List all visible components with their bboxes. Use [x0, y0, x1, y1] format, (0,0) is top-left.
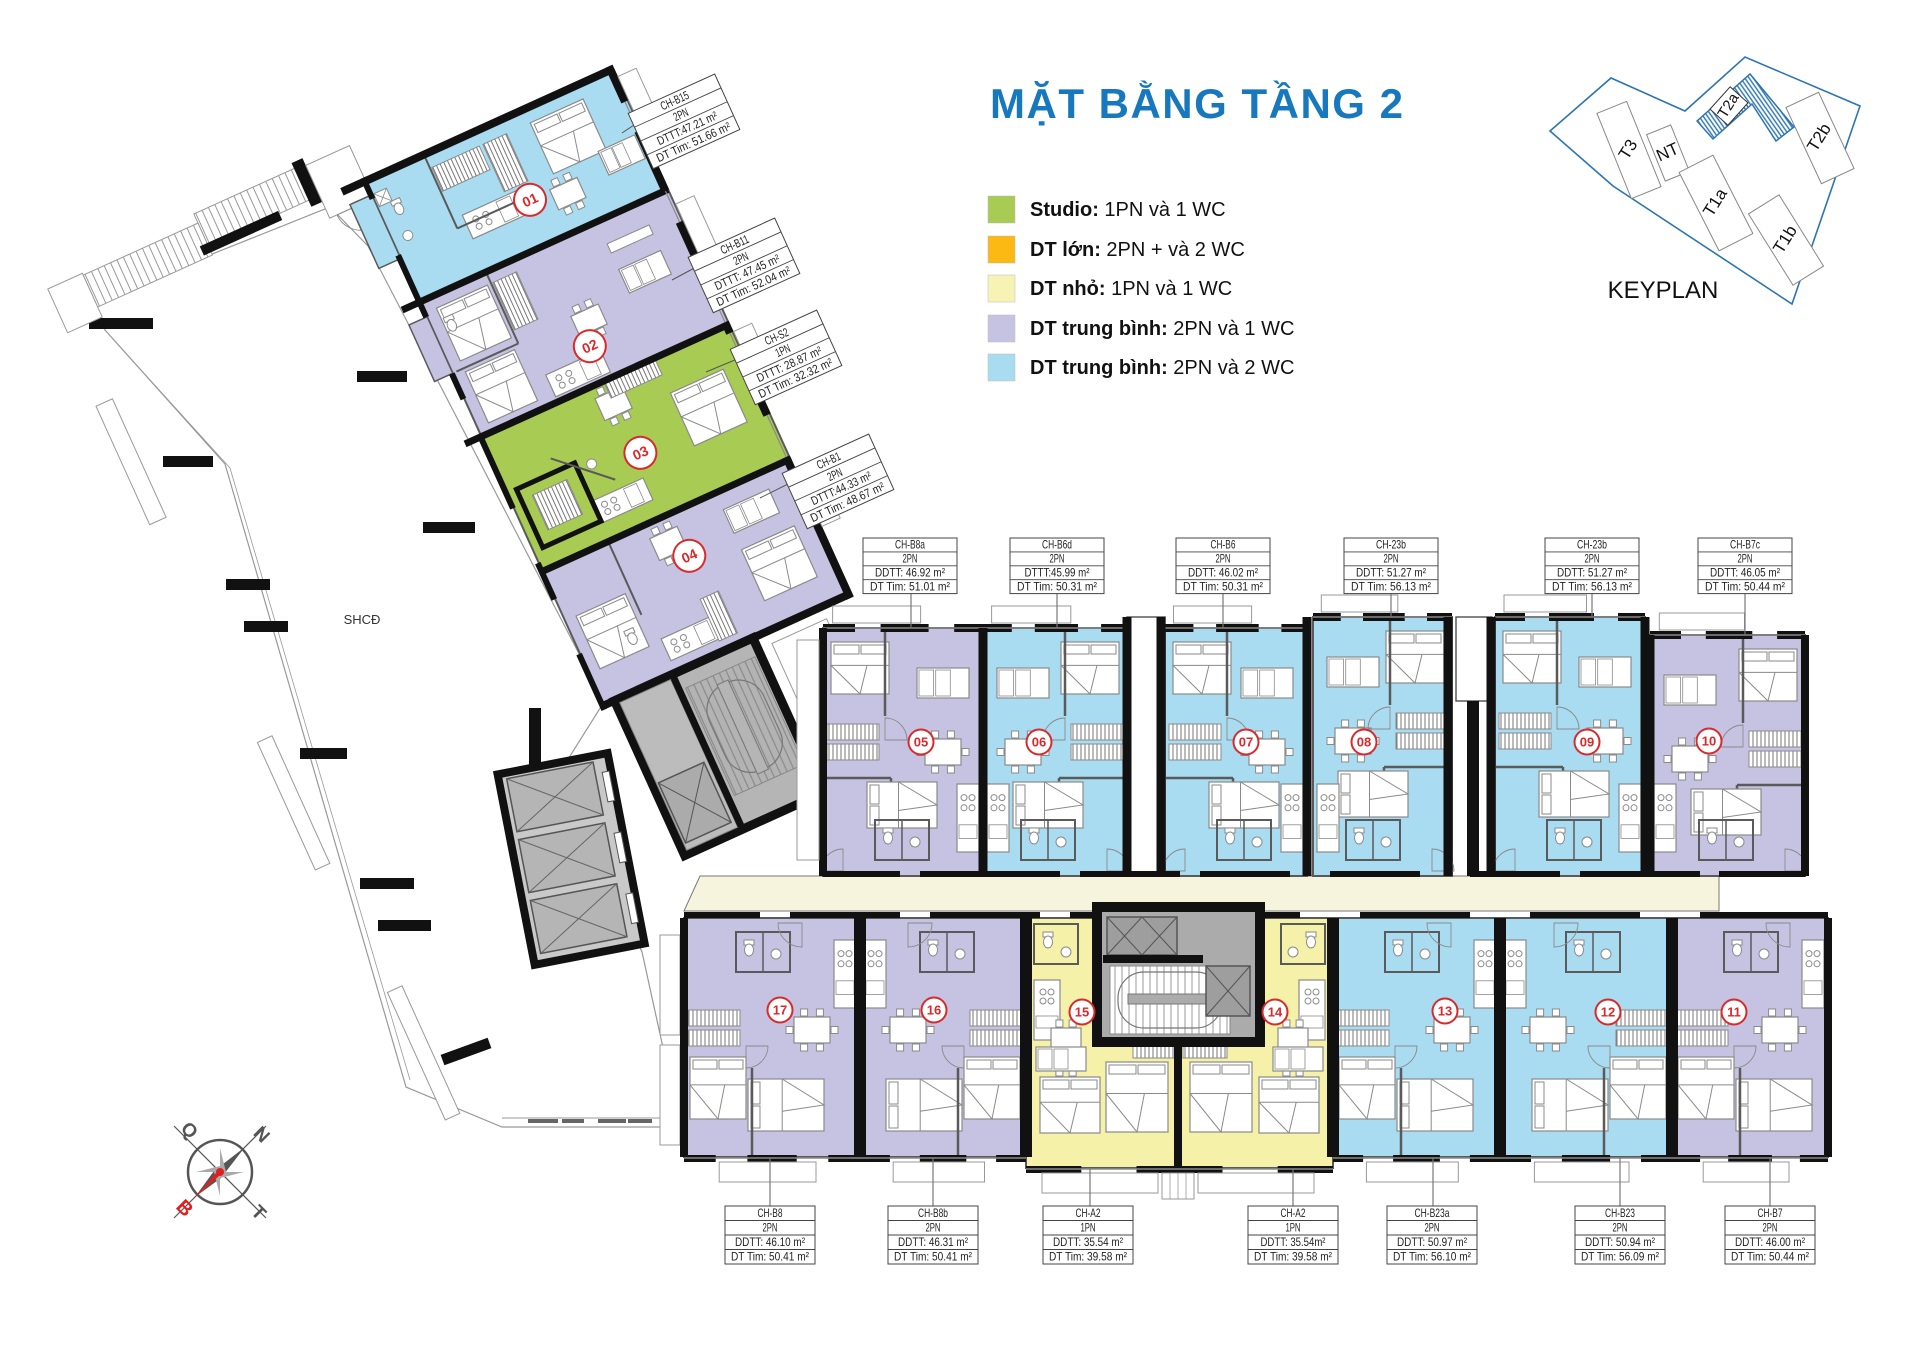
svg-text:KEYPLAN: KEYPLAN [1608, 277, 1719, 304]
svg-text:DT Tim: 56.10 m²: DT Tim: 56.10 m² [1393, 1250, 1471, 1264]
svg-text:CH-A2: CH-A2 [1076, 1206, 1101, 1220]
svg-text:17: 17 [773, 1003, 787, 1018]
svg-text:2PN: 2PN [1763, 1221, 1778, 1235]
svg-text:DT Tim: 51.01 m²: DT Tim: 51.01 m² [870, 579, 950, 593]
svg-text:15: 15 [1075, 1005, 1089, 1020]
svg-text:2PN: 2PN [926, 1221, 941, 1235]
svg-text:2PN: 2PN [1425, 1221, 1440, 1235]
svg-text:2PN: 2PN [1738, 552, 1753, 566]
svg-text:CH-B8a: CH-B8a [895, 538, 925, 552]
svg-text:CH-B7: CH-B7 [1758, 1206, 1783, 1220]
svg-text:2PN: 2PN [1613, 1221, 1628, 1235]
svg-text:14: 14 [1268, 1005, 1283, 1020]
svg-text:CH-A2: CH-A2 [1281, 1206, 1306, 1220]
svg-text:CH-23b: CH-23b [1577, 538, 1607, 552]
svg-text:Studio: 1PN và 1 WC: Studio: 1PN và 1 WC [1030, 199, 1226, 221]
svg-text:DDTT: 51.27 m²: DDTT: 51.27 m² [1557, 565, 1627, 579]
svg-text:DT Tim: 39.58 m²: DT Tim: 39.58 m² [1049, 1250, 1127, 1264]
svg-text:CH-B23a: CH-B23a [1415, 1206, 1450, 1220]
svg-text:DT Tim: 39.58 m²: DT Tim: 39.58 m² [1254, 1250, 1332, 1264]
svg-text:DT trung bình: 2PN và 1 WC: DT trung bình: 2PN và 1 WC [1030, 318, 1294, 340]
svg-text:2PN: 2PN [763, 1221, 778, 1235]
svg-text:10: 10 [1702, 734, 1716, 749]
svg-text:1PN: 1PN [1286, 1221, 1301, 1235]
svg-text:2PN: 2PN [1216, 552, 1231, 566]
svg-text:11: 11 [1727, 1005, 1741, 1020]
svg-text:DDTT: 50.97 m²: DDTT: 50.97 m² [1397, 1235, 1467, 1249]
svg-text:DT Tim: 56.09 m²: DT Tim: 56.09 m² [1581, 1250, 1659, 1264]
svg-text:2PN: 2PN [1585, 552, 1600, 566]
svg-text:DT Tim: 50.31 m²: DT Tim: 50.31 m² [1183, 579, 1263, 593]
svg-text:CH-B23: CH-B23 [1605, 1206, 1635, 1220]
svg-text:DT trung bình: 2PN và 2 WC: DT trung bình: 2PN và 2 WC [1030, 357, 1294, 379]
svg-text:CH-B7c: CH-B7c [1730, 538, 1760, 552]
svg-text:DDTT: 46.00 m²: DDTT: 46.00 m² [1735, 1235, 1805, 1249]
svg-text:DTTT:45.99 m²: DTTT:45.99 m² [1025, 565, 1090, 579]
svg-text:CH-B8: CH-B8 [758, 1206, 783, 1220]
svg-text:CH-B6: CH-B6 [1211, 538, 1236, 552]
svg-text:09: 09 [1580, 735, 1594, 750]
svg-text:DT nhỏ: 1PN và 1 WC: DT nhỏ: 1PN và 1 WC [1030, 278, 1232, 300]
svg-text:DDTT: 51.27 m²: DDTT: 51.27 m² [1356, 565, 1426, 579]
svg-text:13: 13 [1438, 1004, 1452, 1019]
svg-text:DDTT: 46.92 m²: DDTT: 46.92 m² [875, 565, 945, 579]
svg-text:DT Tim: 56.13 m²: DT Tim: 56.13 m² [1351, 579, 1431, 593]
svg-text:DDTT: 46.31 m²: DDTT: 46.31 m² [898, 1235, 968, 1249]
svg-text:08: 08 [1357, 735, 1371, 750]
svg-text:DT Tim: 50.44 m²: DT Tim: 50.44 m² [1731, 1250, 1809, 1264]
svg-text:SHCĐ: SHCĐ [344, 612, 381, 627]
svg-text:CH-23b: CH-23b [1376, 538, 1406, 552]
svg-text:DDTT: 50.94 m²: DDTT: 50.94 m² [1585, 1235, 1655, 1249]
svg-text:05: 05 [914, 735, 928, 750]
svg-text:2PN: 2PN [903, 552, 918, 566]
svg-text:DT Tim: 50.41 m²: DT Tim: 50.41 m² [731, 1250, 809, 1264]
svg-text:CH-B6d: CH-B6d [1042, 538, 1072, 552]
svg-text:DDTT: 46.10 m²: DDTT: 46.10 m² [735, 1235, 805, 1249]
svg-text:DT Tim: 50.41 m²: DT Tim: 50.41 m² [894, 1250, 972, 1264]
svg-text:16: 16 [927, 1003, 941, 1018]
svg-text:DT Tim: 56.13 m²: DT Tim: 56.13 m² [1552, 579, 1632, 593]
svg-text:DDTT: 46.05 m²: DDTT: 46.05 m² [1710, 565, 1780, 579]
svg-text:DT Tim: 50.31 m²: DT Tim: 50.31 m² [1017, 579, 1097, 593]
svg-text:DDTT: 46.02 m²: DDTT: 46.02 m² [1188, 565, 1258, 579]
svg-text:MẶT BẰNG TẦNG 2: MẶT BẰNG TẦNG 2 [990, 80, 1405, 127]
svg-text:2PN: 2PN [1384, 552, 1399, 566]
svg-text:DT Tim: 50.44 m²: DT Tim: 50.44 m² [1705, 579, 1785, 593]
svg-text:06: 06 [1032, 735, 1046, 750]
svg-text:DT lớn: 2PN + và 2 WC: DT lớn: 2PN + và 2 WC [1030, 239, 1245, 261]
svg-text:DDTT: 35.54m²: DDTT: 35.54m² [1261, 1235, 1326, 1249]
svg-text:CH-B8b: CH-B8b [918, 1206, 948, 1220]
svg-text:DDTT: 35.54 m²: DDTT: 35.54 m² [1053, 1235, 1123, 1249]
svg-text:07: 07 [1239, 735, 1253, 750]
svg-text:2PN: 2PN [1050, 552, 1065, 566]
svg-text:12: 12 [1601, 1005, 1615, 1020]
svg-text:1PN: 1PN [1081, 1221, 1096, 1235]
